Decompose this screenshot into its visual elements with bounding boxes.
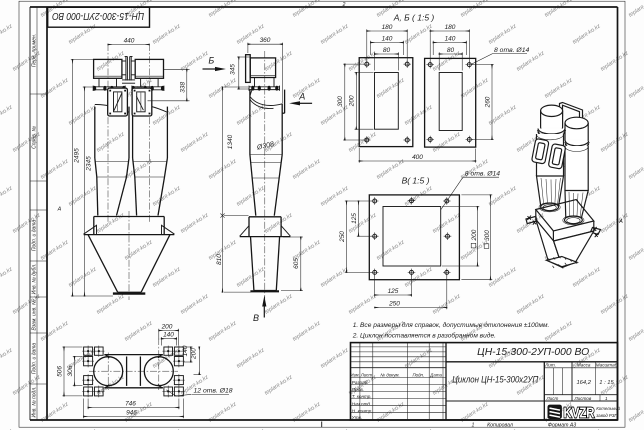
svg-text:teplant-ko.kz: teplant-ko.kz	[0, 185, 14, 207]
svg-text:В: В	[253, 313, 259, 323]
svg-text:teplant-ko.kz: teplant-ko.kz	[0, 104, 14, 126]
svg-text:teplant-ko.kz: teplant-ko.kz	[600, 212, 630, 234]
svg-text:ЦН-15-300-2УП-000 ВО: ЦН-15-300-2УП-000 ВО	[52, 10, 144, 22]
svg-text:300: 300	[484, 230, 491, 241]
svg-text:2345: 2345	[85, 156, 92, 172]
svg-text:Перв. примен.: Перв. примен.	[32, 34, 38, 67]
svg-text:Изм.: Изм.	[350, 373, 359, 378]
svg-text:teplant-ko.kz: teplant-ko.kz	[152, 185, 182, 207]
svg-text:teplant-ko.kz: teplant-ko.kz	[488, 23, 518, 45]
svg-text:teplant-ko.kz: teplant-ko.kz	[460, 0, 490, 19]
svg-text:Копировал: Копировал	[487, 423, 513, 429]
svg-text:teplant-ko.kz: teplant-ko.kz	[600, 131, 630, 153]
svg-text:teplant-ko.kz: teplant-ko.kz	[236, 347, 266, 369]
svg-text:Б: Б	[208, 55, 214, 65]
svg-text:Справ. №: Справ. №	[32, 126, 38, 149]
svg-text:teplant-ko.kz: teplant-ko.kz	[516, 293, 546, 315]
svg-text:400: 400	[412, 154, 423, 161]
svg-text:746: 746	[125, 400, 136, 407]
svg-text:Дата: Дата	[429, 373, 442, 378]
svg-text:teplant-ko.kz: teplant-ko.kz	[404, 104, 434, 126]
svg-text:teplant-ko.kz: teplant-ko.kz	[40, 158, 70, 180]
svg-text:teplant-ko.kz: teplant-ko.kz	[152, 266, 182, 288]
svg-text:200: 200	[349, 95, 356, 107]
svg-text:teplant-ko.kz: teplant-ko.kz	[628, 401, 644, 423]
svg-text:teplant-ko.kz: teplant-ko.kz	[40, 320, 70, 342]
svg-text:teplant-ko.kz: teplant-ko.kz	[96, 293, 126, 315]
svg-text:Подп.: Подп.	[412, 373, 424, 378]
svg-text:teplant-ko.kz: teplant-ko.kz	[376, 77, 406, 99]
svg-text:8 отв. Ø14: 8 отв. Ø14	[465, 170, 501, 177]
svg-text:Лист: Лист	[360, 373, 373, 378]
svg-text:teplant-ko.kz: teplant-ko.kz	[208, 77, 238, 99]
svg-text:teplant-ko.kz: teplant-ko.kz	[180, 293, 210, 315]
svg-text:teplant-ko.kz: teplant-ko.kz	[404, 23, 434, 45]
svg-text:teplant-ko.kz: teplant-ko.kz	[0, 266, 14, 288]
svg-text:teplant-ko.kz: teplant-ko.kz	[236, 185, 266, 207]
svg-text:946: 946	[126, 409, 137, 416]
svg-text:teplant-ko.kz: teplant-ko.kz	[320, 23, 350, 45]
svg-text:345: 345	[229, 64, 236, 75]
svg-text:140: 140	[182, 345, 189, 356]
svg-text:250: 250	[388, 300, 400, 307]
svg-text:teplant-ko.kz: teplant-ko.kz	[432, 212, 462, 234]
svg-text:Листов: Листов	[574, 396, 592, 401]
svg-text:teplant-ko.kz: teplant-ko.kz	[628, 239, 644, 261]
svg-text:teplant-ko.kz: teplant-ko.kz	[40, 239, 70, 261]
svg-text:ЦН-15-300-2УП-000 ВО: ЦН-15-300-2УП-000 ВО	[477, 347, 589, 358]
svg-text:338: 338	[179, 81, 186, 92]
svg-text:teplant-ko.kz: teplant-ko.kz	[152, 23, 182, 45]
svg-text:teplant-ko.kz: teplant-ko.kz	[628, 158, 644, 180]
svg-text:teplant-ko.kz: teplant-ko.kz	[376, 239, 406, 261]
svg-text:80: 80	[447, 47, 455, 54]
svg-text:teplant-ko.kz: teplant-ko.kz	[600, 50, 630, 72]
svg-text:140: 140	[163, 332, 174, 339]
svg-text:Н. контр.: Н. контр.	[352, 408, 373, 413]
svg-text:teplant-ko.kz: teplant-ko.kz	[544, 77, 574, 99]
svg-text:teplant-ko.kz: teplant-ko.kz	[264, 374, 294, 396]
svg-text:605: 605	[293, 258, 300, 269]
svg-text:180: 180	[445, 24, 456, 31]
svg-text:teplant-ko.kz: teplant-ko.kz	[348, 50, 378, 72]
svg-text:80: 80	[383, 47, 391, 54]
svg-text:teplant-ko.kz: teplant-ko.kz	[292, 320, 322, 342]
svg-text:200: 200	[471, 229, 478, 241]
svg-text:teplant-ko.kz: teplant-ko.kz	[600, 293, 630, 315]
svg-text:teplant-ko.kz: teplant-ko.kz	[292, 0, 322, 19]
svg-text:140: 140	[382, 35, 393, 42]
svg-text:teplant-ko.kz: teplant-ko.kz	[628, 320, 644, 342]
svg-text:teplant-ko.kz: teplant-ko.kz	[124, 320, 154, 342]
svg-text:Подп. и дата: Подп. и дата	[32, 343, 38, 375]
svg-text:teplant-ko.kz: teplant-ko.kz	[320, 347, 350, 369]
svg-text:Масса: Масса	[577, 363, 591, 368]
svg-text:teplant-ko.kz: teplant-ko.kz	[488, 266, 518, 288]
svg-text:200: 200	[161, 323, 173, 330]
svg-text:teplant-ko.kz: teplant-ko.kz	[96, 212, 126, 234]
svg-text:KVZR: KVZR	[564, 405, 595, 422]
svg-text:teplant-ko.kz: teplant-ko.kz	[292, 158, 322, 180]
svg-text:teplant-ko.kz: teplant-ko.kz	[432, 131, 462, 153]
svg-text:Пров.: Пров.	[352, 387, 364, 392]
svg-text:teplant-ko.kz: teplant-ko.kz	[180, 212, 210, 234]
svg-text:teplant-ko.kz: teplant-ko.kz	[460, 77, 490, 99]
svg-text:Инв. № подл.: Инв. № подл.	[32, 386, 38, 417]
svg-text:Масштаб: Масштаб	[596, 363, 618, 368]
svg-text:164,2: 164,2	[576, 380, 591, 386]
svg-text:teplant-ko.kz: teplant-ko.kz	[40, 77, 70, 99]
svg-text:teplant-ko.kz: teplant-ko.kz	[180, 131, 210, 153]
svg-text:Подп. и дата: Подп. и дата	[32, 220, 38, 252]
svg-text:teplant-ko.kz: teplant-ko.kz	[264, 212, 294, 234]
svg-text:Нач.отд.: Нач.отд.	[352, 401, 371, 406]
svg-text:teplant-ko.kz: teplant-ko.kz	[96, 131, 126, 153]
svg-text:300: 300	[337, 96, 344, 107]
svg-text:Инв. № дубл.: Инв. № дубл.	[32, 264, 38, 295]
svg-text:teplant-ko.kz: teplant-ko.kz	[208, 158, 238, 180]
svg-text:506: 506	[56, 366, 63, 377]
svg-text:140: 140	[445, 35, 456, 42]
svg-text:teplant-ko.kz: teplant-ko.kz	[264, 293, 294, 315]
svg-text:Лит.: Лит.	[544, 363, 556, 368]
svg-text:810: 810	[216, 254, 223, 265]
svg-text:teplant-ko.kz: teplant-ko.kz	[348, 131, 378, 153]
svg-text:teplant-ko.kz: teplant-ko.kz	[488, 104, 518, 126]
svg-text:teplant-ko.kz: teplant-ko.kz	[348, 293, 378, 315]
svg-text:180: 180	[382, 24, 393, 31]
svg-text:teplant-ko.kz: teplant-ko.kz	[320, 185, 350, 207]
svg-text:2495: 2495	[73, 148, 80, 164]
svg-text:Котельный: Котельный	[596, 406, 620, 411]
svg-text:teplant-ko.kz: teplant-ko.kz	[488, 185, 518, 207]
svg-text:Циклон ЦН-15-300х2УП: Циклон ЦН-15-300х2УП	[452, 374, 538, 384]
svg-text:А, Б ( 1:5 ): А, Б ( 1:5 )	[393, 13, 435, 23]
svg-text:teplant-ko.kz: teplant-ko.kz	[544, 0, 574, 19]
svg-text:teplant-ko.kz: teplant-ko.kz	[208, 320, 238, 342]
svg-text:2: 2	[342, 2, 346, 8]
svg-text:А: А	[298, 91, 305, 101]
svg-text:teplant-ko.kz: teplant-ko.kz	[404, 266, 434, 288]
svg-text:260: 260	[484, 96, 491, 108]
svg-text:№ докум.: № докум.	[380, 373, 399, 378]
svg-text:440: 440	[124, 37, 135, 44]
svg-text:1 : 15: 1 : 15	[599, 380, 614, 386]
svg-text:В( 1:5 ): В( 1:5 )	[402, 176, 430, 186]
svg-text:teplant-ko.kz: teplant-ko.kz	[208, 0, 238, 19]
svg-text:teplant-ko.kz: teplant-ko.kz	[264, 50, 294, 72]
svg-text:1: 1	[472, 423, 475, 429]
svg-text:125: 125	[351, 213, 358, 224]
svg-text:teplant-ko.kz: teplant-ko.kz	[460, 239, 490, 261]
svg-text:teplant-ko.kz: teplant-ko.kz	[572, 266, 602, 288]
svg-text:teplant-ko.kz: teplant-ko.kz	[124, 239, 154, 261]
svg-text:12 отв. Ø18: 12 отв. Ø18	[194, 388, 233, 395]
svg-text:1. Все размеры для справок, до: 1. Все размеры для справок, допустимые о…	[353, 321, 550, 329]
svg-text:teplant-ko.kz: teplant-ko.kz	[628, 0, 644, 19]
svg-text:Разраб.: Разраб.	[352, 380, 369, 385]
svg-text:teplant-ko.kz: teplant-ko.kz	[320, 266, 350, 288]
svg-text:teplant-ko.kz: teplant-ko.kz	[628, 77, 644, 99]
svg-text:teplant-ko.kz: teplant-ko.kz	[320, 104, 350, 126]
svg-text:Лист: Лист	[546, 396, 559, 401]
svg-text:Т. контр.: Т. контр.	[352, 394, 372, 399]
svg-text:1: 1	[605, 396, 608, 401]
svg-text:завод РЗП: завод РЗП	[595, 413, 618, 418]
svg-text:250: 250	[339, 231, 346, 243]
svg-text:125: 125	[388, 288, 399, 295]
svg-text:А: А	[618, 219, 623, 225]
svg-text:8 отв. Ø14: 8 отв. Ø14	[494, 47, 530, 54]
svg-text:teplant-ko.kz: teplant-ko.kz	[0, 347, 14, 369]
svg-text:teplant-ko.kz: teplant-ko.kz	[292, 77, 322, 99]
svg-text:А: А	[57, 207, 62, 213]
svg-text:teplant-ko.kz: teplant-ko.kz	[572, 23, 602, 45]
svg-text:2. Циклон поставляется в разоб: 2. Циклон поставляется в разобранном вид…	[352, 332, 496, 340]
svg-text:teplant-ko.kz: teplant-ko.kz	[236, 266, 266, 288]
svg-text:teplant-ko.kz: teplant-ko.kz	[0, 23, 14, 45]
svg-text:306: 306	[67, 365, 74, 376]
svg-text:Утв.: Утв.	[352, 415, 362, 420]
svg-text:360: 360	[260, 37, 271, 44]
svg-text:200: 200	[190, 348, 197, 360]
svg-text:teplant-ko.kz: teplant-ko.kz	[404, 185, 434, 207]
svg-text:Взам. инв. №: Взам. инв. №	[32, 299, 38, 331]
svg-text:1340: 1340	[227, 134, 234, 149]
svg-text:Формат А3: Формат А3	[548, 423, 576, 429]
